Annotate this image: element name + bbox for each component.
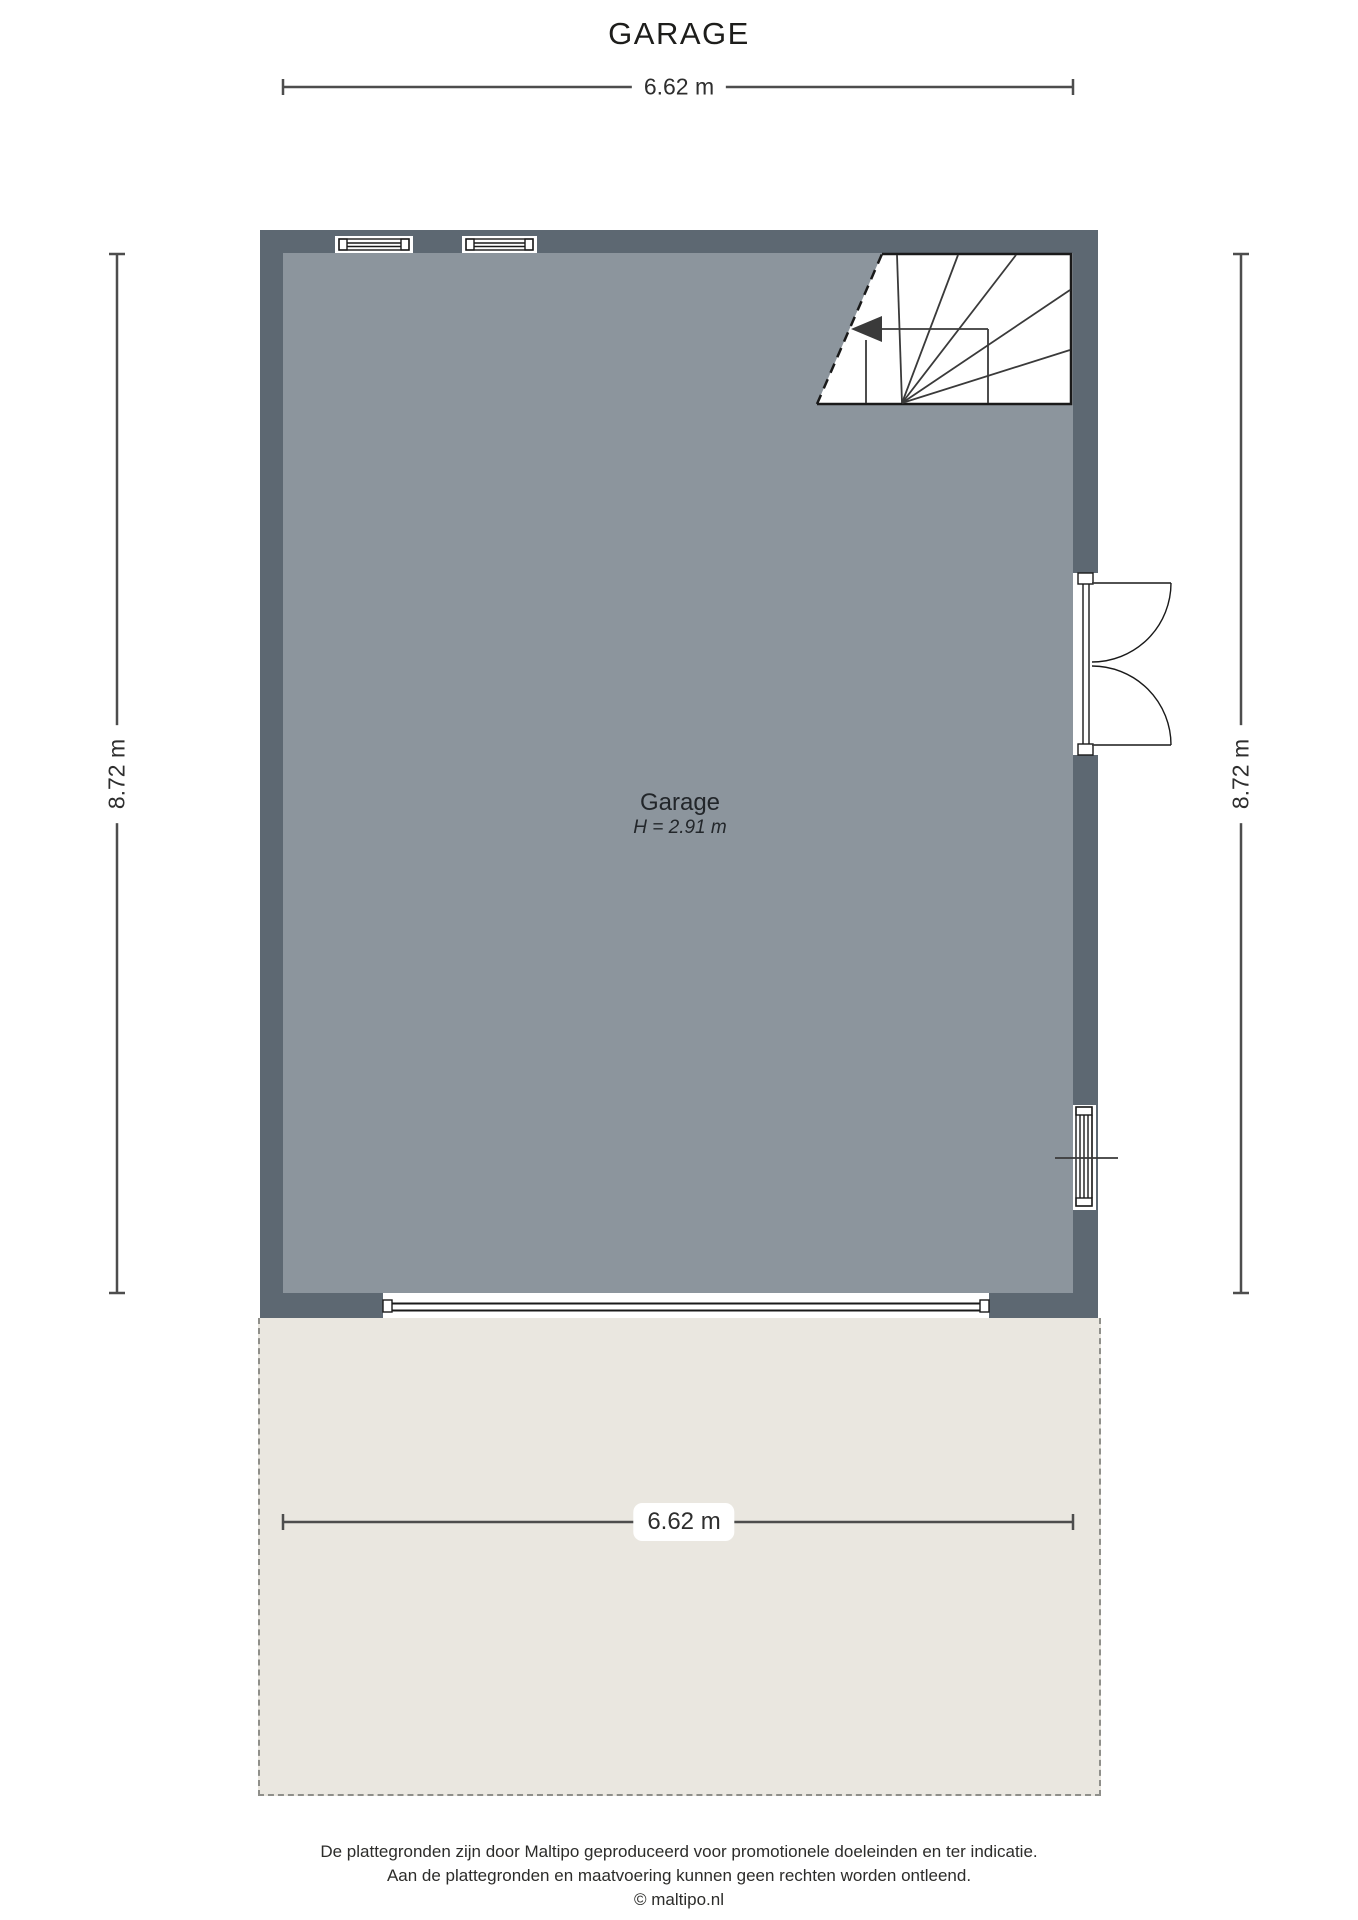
plan-title: GARAGE bbox=[0, 16, 1358, 52]
top-window-right-opening bbox=[462, 236, 537, 253]
garage-floor bbox=[283, 253, 1073, 1293]
dimension-right-label: 8.72 m bbox=[1226, 725, 1257, 823]
top-window-left-opening bbox=[335, 236, 413, 253]
dimension-bottom-label: 6.62 m bbox=[633, 1503, 734, 1541]
dimension-top-label: 6.62 m bbox=[632, 72, 726, 103]
floor-plan-page: GARAGE bbox=[0, 0, 1358, 1920]
footer-line-2: Aan de plattegronden en maatvoering kunn… bbox=[0, 1864, 1358, 1888]
footer-line-3: © maltipo.nl bbox=[0, 1888, 1358, 1912]
room-name-label: Garage bbox=[640, 789, 720, 817]
footer-disclaimer: De plattegronden zijn door Maltipo gepro… bbox=[0, 1840, 1358, 1912]
dimension-left-label: 8.72 m bbox=[102, 725, 133, 823]
room-height-label: H = 2.91 m bbox=[633, 817, 726, 839]
side-window-opening bbox=[1073, 1105, 1096, 1210]
footer-line-1: De plattegronden zijn door Maltipo gepro… bbox=[0, 1840, 1358, 1864]
entrance-door-opening bbox=[1073, 573, 1098, 755]
garage-door-opening bbox=[383, 1293, 989, 1318]
terrace-area bbox=[258, 1318, 1101, 1796]
